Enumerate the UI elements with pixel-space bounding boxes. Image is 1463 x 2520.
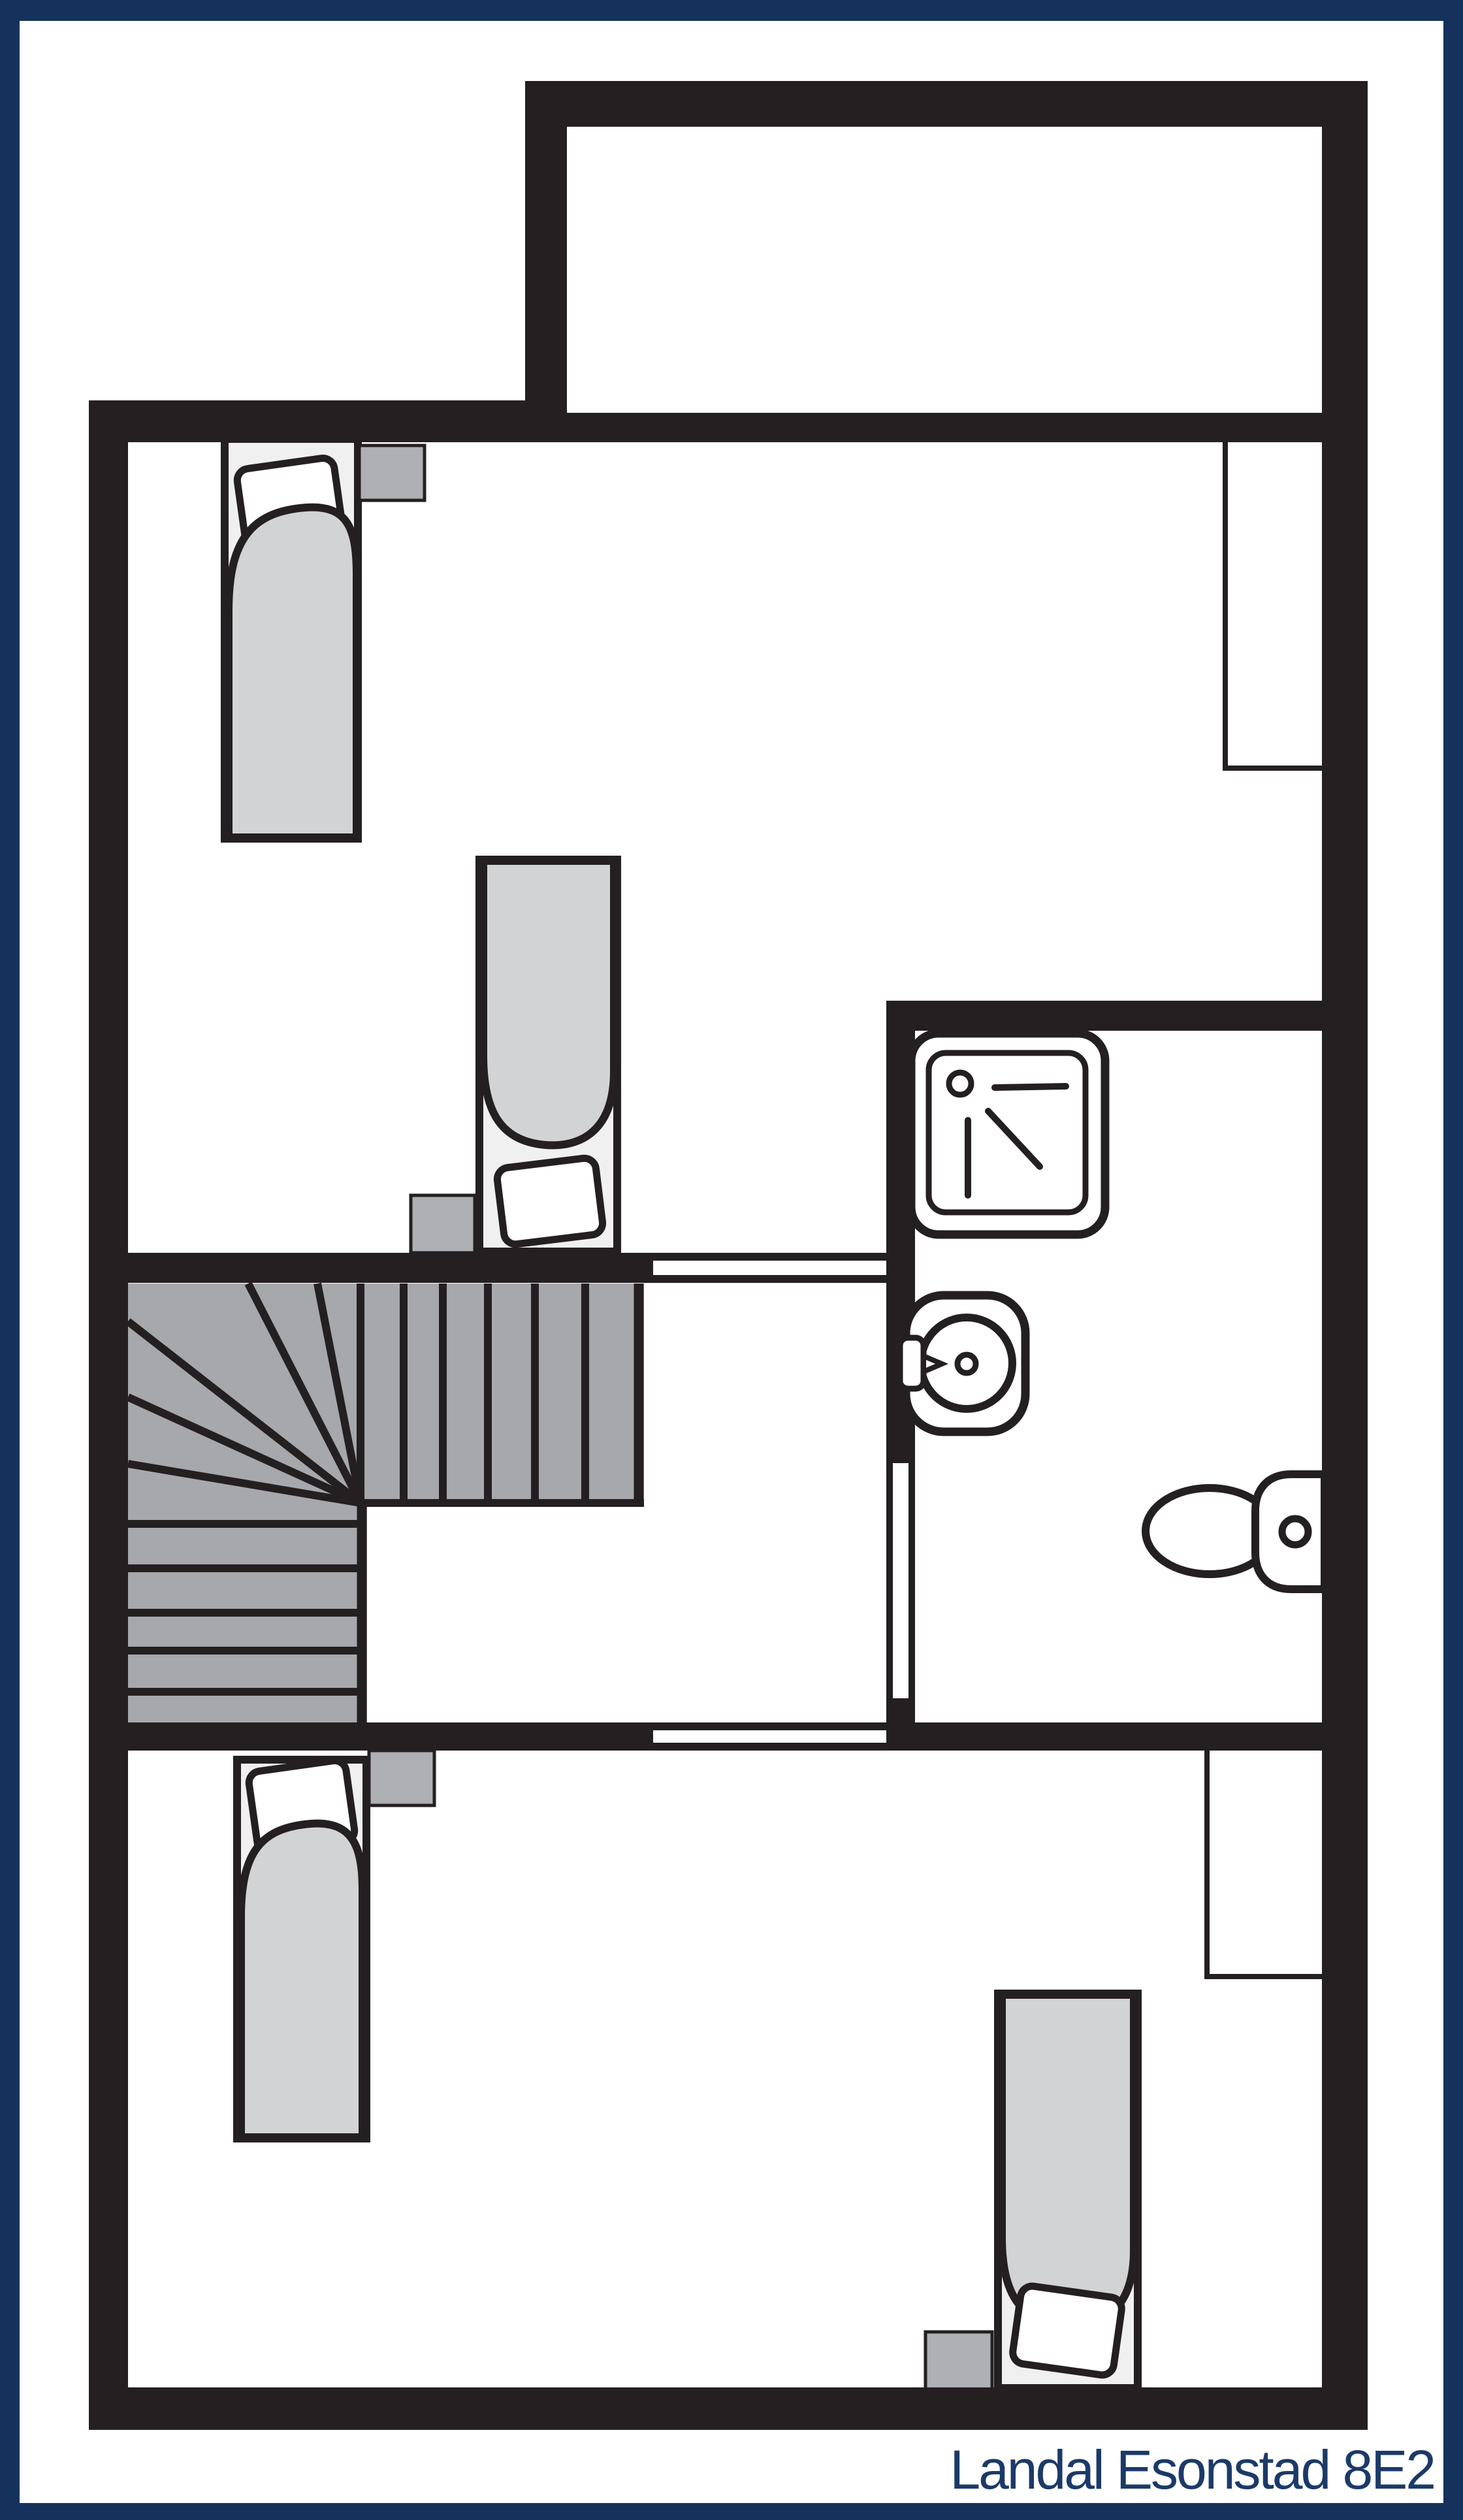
door-jamb-line bbox=[886, 1463, 893, 1698]
washbasin bbox=[900, 1295, 1025, 1432]
border-top bbox=[0, 0, 1463, 21]
bed-lower-right bbox=[998, 1994, 1138, 2388]
shower-arm-line bbox=[995, 1086, 1066, 1088]
door-threshold-line bbox=[653, 1275, 886, 1283]
bathroom-wall-bottom bbox=[886, 1722, 1322, 1751]
annex-wall-left bbox=[525, 81, 567, 442]
bed-blanket bbox=[241, 1824, 362, 2137]
bathroom-wall-top bbox=[886, 1001, 1322, 1031]
washbasin-drain bbox=[957, 1355, 976, 1373]
bed-blanket bbox=[229, 508, 357, 837]
nightstand bbox=[369, 1751, 434, 1805]
stair-upper-run bbox=[128, 1284, 644, 1503]
door-threshold-line bbox=[653, 1253, 886, 1261]
bed-blanket bbox=[1002, 1995, 1134, 2325]
wall-landing-bedroom-lower bbox=[89, 1722, 653, 1751]
bed-pillow bbox=[496, 1157, 603, 1246]
shower-head bbox=[949, 1073, 971, 1095]
outer-wall-right bbox=[1322, 81, 1368, 2430]
recess-line bbox=[1204, 1974, 1322, 1979]
nightstand bbox=[925, 2332, 992, 2389]
outer-wall-bottom bbox=[89, 2387, 1368, 2430]
shower bbox=[911, 1033, 1105, 1235]
door-jamb-line bbox=[908, 1463, 915, 1698]
bed-blanket bbox=[483, 861, 614, 1145]
bed-upper-left bbox=[225, 439, 358, 839]
plan-caption: Landal Esonstad 8E2 bbox=[950, 2439, 1434, 2500]
toilet-flush-button bbox=[1282, 1519, 1308, 1545]
annex-wall-top bbox=[525, 81, 1368, 127]
border-left bbox=[0, 0, 20, 2520]
border-right bbox=[1443, 0, 1463, 2520]
door-threshold-line bbox=[653, 1722, 886, 1730]
door-threshold-line bbox=[653, 1743, 886, 1751]
nightstand bbox=[359, 445, 425, 500]
bed-lower-left bbox=[237, 1759, 366, 2139]
nightstand bbox=[411, 1195, 475, 1253]
floor-plan-drawing: Landal Esonstad 8E2 bbox=[0, 0, 1463, 2520]
bed-upper-middle bbox=[479, 860, 617, 1252]
bed-pillow bbox=[1011, 2285, 1123, 2377]
recess-line bbox=[1204, 1751, 1210, 1979]
border-bottom bbox=[0, 2503, 1463, 2520]
washbasin-faucet bbox=[900, 1338, 924, 1389]
recess-line bbox=[1223, 766, 1322, 771]
wall-bedroom-landing bbox=[89, 1253, 653, 1283]
floor-plan-page: Landal Esonstad 8E2 bbox=[0, 0, 1463, 2520]
recess-line bbox=[1223, 442, 1228, 771]
wall-under-annex bbox=[567, 413, 1368, 442]
outer-wall-left bbox=[89, 400, 128, 2430]
outer-wall-top-left-segment bbox=[89, 400, 567, 442]
